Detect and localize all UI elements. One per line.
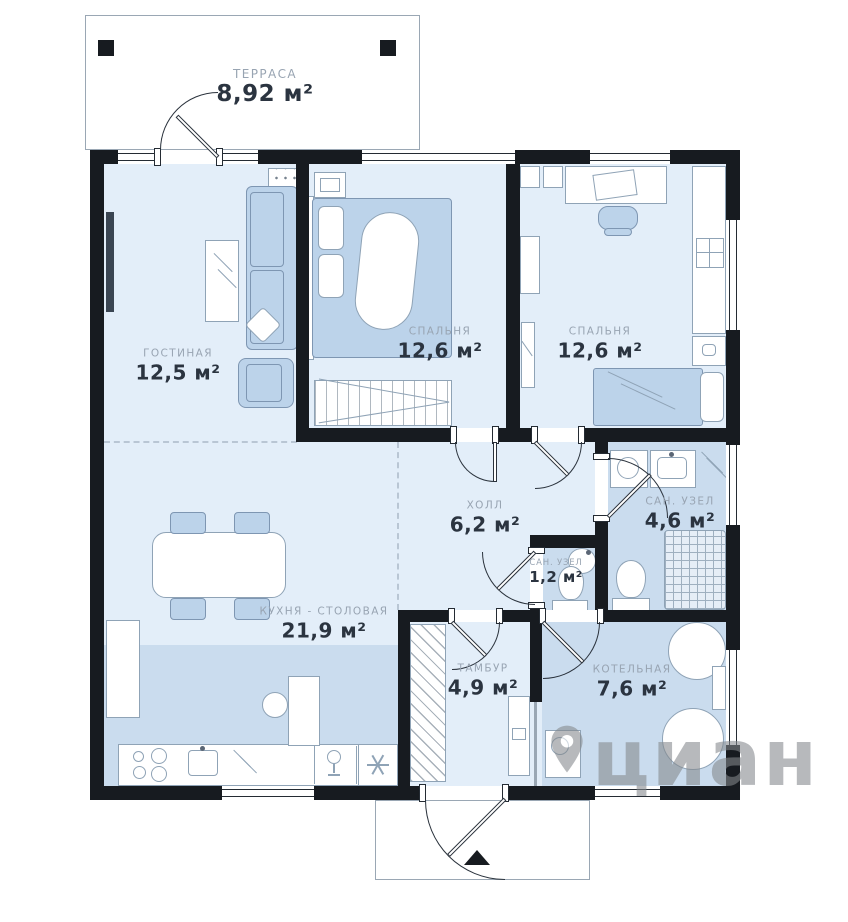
room-area: 4,9 м² — [448, 675, 519, 699]
room-name: СПАЛЬНЯ — [398, 326, 483, 339]
window — [590, 150, 670, 164]
wall-shelf — [520, 236, 540, 294]
room-label-boiler: КОТЕЛЬНАЯ 7,6 м² — [593, 664, 672, 701]
window — [726, 220, 740, 330]
dining-table — [152, 532, 286, 598]
room-name: ТЕРРАСА — [216, 67, 313, 81]
room-label-bathroom-main: САН. УЗЕЛ 4,6 м² — [645, 496, 716, 533]
room-area: 12,6 м² — [558, 338, 643, 362]
window — [362, 150, 515, 164]
faucet-icon — [200, 746, 205, 751]
room-label-terrace: ТЕРРАСА 8,92 м² — [216, 67, 313, 109]
room-label-vestibule: ТАМБУР 4,9 м² — [448, 663, 519, 700]
nightstand-item — [702, 344, 716, 356]
bed-pillow — [318, 206, 344, 250]
window — [218, 150, 258, 164]
floor-plan: ТЕРРАСА 8,92 м² ГОСТИНАЯ 12,5 м² СПАЛЬНЯ… — [0, 0, 848, 922]
room-label-bedroom-1: СПАЛЬНЯ 12,6 м² — [398, 326, 483, 363]
desk-chair — [598, 206, 638, 230]
room-area: 4,6 м² — [645, 508, 716, 532]
bed-pillow — [318, 254, 344, 298]
room-area: 12,6 м² — [398, 338, 483, 362]
door-opening — [543, 610, 600, 622]
room-area: 8,92 м² — [216, 81, 313, 109]
counter-divider — [356, 746, 357, 784]
shoe-cabinet-drawer — [512, 728, 526, 740]
desk-chair-base — [604, 228, 632, 236]
window — [726, 445, 740, 525]
wall — [296, 164, 309, 442]
dining-chair — [234, 512, 270, 534]
window — [222, 786, 314, 800]
terrace-post — [380, 40, 396, 56]
room-name: СПАЛЬНЯ — [558, 326, 643, 339]
radiator — [712, 666, 726, 710]
partition — [534, 702, 537, 786]
wall-cabinet — [520, 166, 540, 188]
door-opening — [455, 428, 495, 442]
room-area: 6,2 м² — [450, 512, 521, 536]
bar-stool — [262, 692, 288, 718]
location-pin-icon — [548, 724, 586, 774]
room-label-bathroom-small: САН. УЗЕЛ 1,2 м² — [529, 558, 583, 586]
dishwasher-glass-icon — [327, 750, 341, 764]
dishwasher-glass-stem — [333, 764, 335, 773]
stove-burner — [133, 766, 146, 779]
wall — [506, 164, 520, 428]
room-name: КУХНЯ - СТОЛОВАЯ — [260, 606, 389, 619]
zone-divider — [397, 442, 401, 610]
room-name: ТАМБУР — [448, 663, 519, 676]
hallway-closet — [410, 624, 446, 782]
room-label-kitchen: КУХНЯ - СТОЛОВАЯ 21,9 м² — [260, 606, 389, 643]
kitchen-island — [288, 676, 320, 746]
door-opening — [535, 428, 582, 442]
wall-cabinet — [543, 166, 563, 188]
dining-chair — [170, 512, 206, 534]
wall — [398, 610, 410, 786]
door-jamb — [154, 148, 161, 166]
wall — [530, 622, 542, 702]
stove-burner — [151, 748, 167, 764]
terrace-post — [98, 40, 114, 56]
room-area: 1,2 м² — [529, 568, 583, 586]
counter-divider — [314, 746, 315, 784]
room-name: ХОЛЛ — [450, 500, 521, 513]
console-table — [205, 240, 239, 322]
dishwasher-glass-base — [328, 774, 340, 776]
dining-chair — [170, 598, 206, 620]
toilet-bowl — [616, 560, 646, 598]
watermark: циан — [548, 720, 819, 798]
shower — [664, 530, 726, 610]
door-opening — [425, 786, 505, 800]
door-leaf — [493, 442, 497, 482]
room-area: 12,5 м² — [136, 360, 221, 384]
kitchen-sink — [188, 750, 218, 776]
room-name: САН. УЗЕЛ — [645, 496, 716, 509]
room-label-living: ГОСТИНАЯ 12,5 м² — [136, 348, 221, 385]
faucet-icon — [586, 550, 591, 555]
door-opening — [452, 610, 500, 622]
closet-shelf-line — [709, 238, 710, 268]
wall — [582, 428, 740, 442]
zone-divider — [104, 441, 297, 445]
door-opening — [595, 458, 608, 518]
tall-cabinet — [106, 620, 140, 718]
picture-frame-inner — [320, 178, 340, 192]
armchair-cushion — [246, 364, 282, 402]
room-name: САН. УЗЕЛ — [529, 558, 583, 568]
stove-burner — [151, 766, 167, 782]
sofa-cushion — [250, 192, 284, 267]
bathroom-sink — [657, 457, 687, 479]
room-area: 7,6 м² — [593, 676, 672, 700]
room-label-bedroom-2: СПАЛЬНЯ 12,6 м² — [558, 326, 643, 363]
stove-burner — [133, 751, 144, 762]
wall — [90, 150, 104, 800]
faucet-icon — [669, 452, 674, 457]
room-area: 21,9 м² — [260, 618, 389, 642]
watermark-text: циан — [592, 720, 819, 798]
bed-pillow — [700, 372, 724, 422]
room-name: ГОСТИНАЯ — [136, 348, 221, 361]
room-label-hall: ХОЛЛ 6,2 м² — [450, 500, 521, 537]
room-name: КОТЕЛЬНАЯ — [593, 664, 672, 677]
tv-icon — [106, 212, 114, 312]
